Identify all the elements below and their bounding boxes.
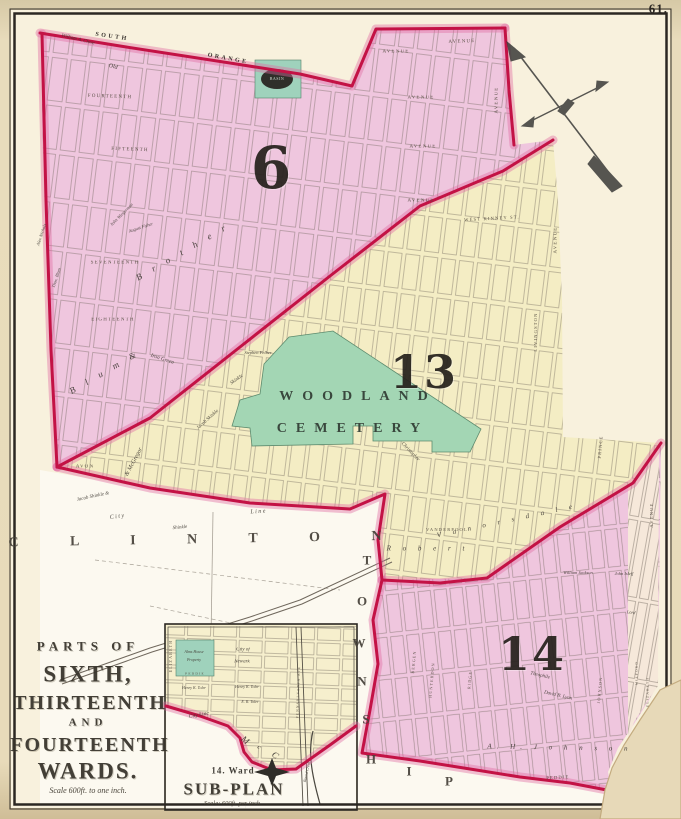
atlas-map-plate: 61314SOUTHORANGEWilliam A. CloveOldFOURT… <box>0 0 681 819</box>
subplan-inset <box>165 624 357 810</box>
atlas-page: { "page_number": "61.", "map_title": { "… <box>0 0 681 819</box>
page-number: 61. <box>649 1 668 17</box>
map-canvas <box>0 0 681 819</box>
